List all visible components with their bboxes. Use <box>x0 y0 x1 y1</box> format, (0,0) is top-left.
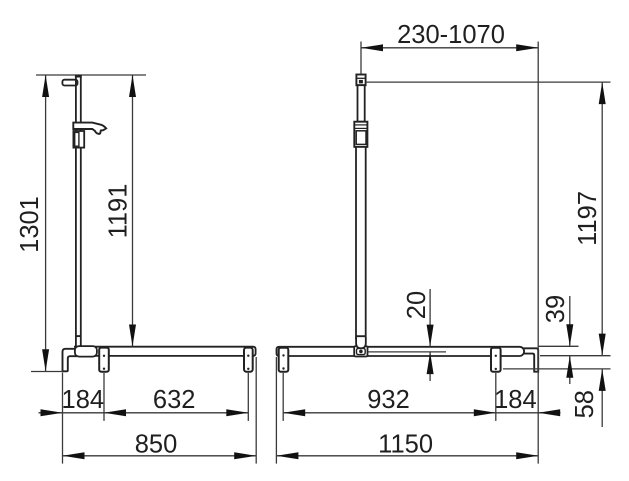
svg-text:632: 632 <box>153 386 196 414</box>
svg-text:1197: 1197 <box>574 191 602 246</box>
svg-text:1191: 1191 <box>105 184 133 239</box>
svg-text:184: 184 <box>62 386 105 414</box>
svg-text:58: 58 <box>571 390 599 418</box>
svg-text:184: 184 <box>494 386 537 414</box>
svg-text:932: 932 <box>367 386 410 414</box>
svg-text:39: 39 <box>542 295 570 323</box>
svg-text:20: 20 <box>403 291 431 319</box>
svg-text:230-1070: 230-1070 <box>397 21 505 49</box>
svg-text:1301: 1301 <box>16 196 44 253</box>
svg-text:1150: 1150 <box>378 430 433 458</box>
svg-text:850: 850 <box>135 430 178 458</box>
